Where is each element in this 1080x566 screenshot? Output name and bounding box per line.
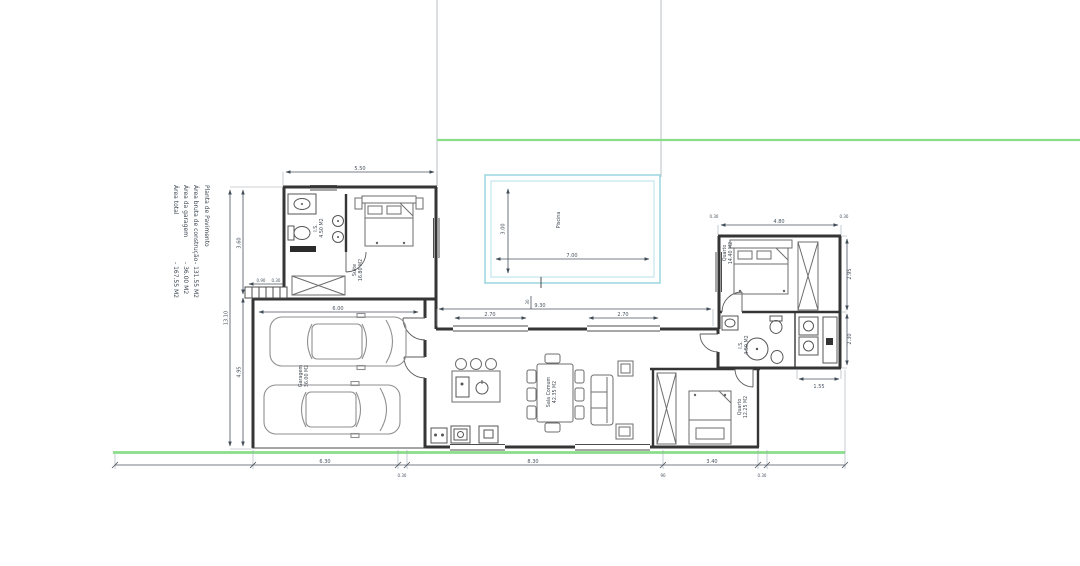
cooktop-icon: [456, 377, 469, 397]
toilet-icon: [294, 227, 310, 240]
shower-base-icon: [290, 246, 316, 252]
area-garagem-value: - 36.00 M2: [182, 262, 189, 294]
interior-walls: [346, 194, 840, 447]
dim-text-window-2: 2.70: [617, 312, 628, 318]
dim-text-porch-b: 0.30: [272, 278, 281, 283]
dim-text-bottom-6: 0.30: [758, 473, 767, 478]
room-label-quarto2-name: Quarto: [737, 399, 743, 416]
dim-text-porch-a: 0.90: [257, 278, 266, 283]
room-labels: I.S. 4.50 M2 Suite 16.80 M2 Piscina Quar…: [298, 212, 750, 419]
living-furniture: [591, 361, 633, 439]
tv-cabinet-icon: [618, 361, 633, 376]
sink-counter-icon: [722, 316, 738, 330]
sofa-icon: [591, 375, 613, 425]
kitchen-appliances: [431, 426, 498, 443]
area-construcao-value: - 131.55 M2: [192, 262, 199, 298]
bed-headboard-icon: [730, 240, 792, 248]
room-label-quarto1-area: 14.40 M2: [728, 242, 734, 264]
chair-icon: [527, 370, 536, 383]
quarto2-door: [735, 369, 753, 387]
chair-icon: [575, 388, 584, 401]
pillow-icon: [387, 206, 401, 214]
dim-text-window-1: 2.70: [484, 312, 495, 318]
dim-text-pool-width: 7.00: [566, 253, 577, 259]
dim-text-wing-off-l: 0.30: [710, 214, 719, 219]
floor-plan-page: Planta de Pavimento Área bruta de constr…: [0, 0, 1080, 566]
dim-text-left-lower: 4.95: [237, 366, 243, 377]
dim-text-mid-wall: 30: [525, 299, 530, 305]
chair-icon: [575, 406, 584, 419]
stool-icon: [456, 359, 467, 370]
pillow-icon: [368, 206, 382, 214]
title-block: Planta de Pavimento Área bruta de constr…: [172, 185, 210, 298]
dim-text-bottom-1: 6.30: [319, 459, 330, 465]
area-total-value: - 167.55 M2: [172, 262, 179, 298]
toilet-tank-icon: [288, 226, 294, 240]
dim-text-right-lower: 2.30: [847, 333, 853, 344]
chair-icon: [545, 354, 560, 363]
oven-icon: [479, 426, 498, 443]
basin-drain-icon: [301, 203, 303, 205]
chair-icon: [527, 388, 536, 401]
chair-icon: [545, 423, 560, 432]
blanket-fold-icon: [365, 203, 413, 218]
dimensions: 5.50 13.10 3.60 4.95 0.90 0.30 3.00 7.00…: [112, 166, 853, 478]
suite-furniture: [292, 196, 423, 295]
garage-cars: [264, 314, 406, 438]
dim-text-pool-height: 3.00: [501, 223, 507, 234]
quarto1-door: [722, 292, 742, 312]
dim-text-bottom-4: 90: [660, 473, 666, 478]
room-label-is2-area: 4.50 M2: [744, 335, 750, 354]
dim-bottom-chain: [112, 462, 848, 468]
pillow-icon: [696, 428, 724, 439]
dim-text-bottom-2: 0.30: [398, 473, 407, 478]
room-label-sala-name: Sala Comum: [546, 376, 552, 407]
dim-text-garage-width: 6.00: [332, 306, 343, 312]
dim-text-bottom-3: 8.30: [527, 459, 538, 465]
bathroom-2-fixtures: [722, 316, 783, 364]
area-garagem-label: Área da garagem: [182, 185, 189, 237]
is2-door: [700, 334, 718, 352]
area-construcao-label: Área bruta de construção: [192, 185, 199, 262]
site-lines: [113, 0, 1080, 453]
double-bed-icon: [689, 391, 731, 444]
car-icon: [264, 382, 400, 438]
quarto2-furniture: [657, 373, 731, 444]
pillow-icon: [757, 251, 771, 259]
garage-door-2: [404, 357, 425, 378]
dim-text-left-upper: 3.60: [237, 237, 243, 248]
room-label-is1-name: I.S.: [313, 224, 319, 232]
room-label-quarto2-area: 12.25 M2: [743, 396, 749, 418]
suite-wardrobe-icon: [292, 276, 345, 295]
room-label-sala-area: 42.35 M2: [552, 381, 558, 403]
dim-text-mid-total: 9.30: [534, 303, 545, 309]
dryer-icon: [799, 337, 818, 355]
dim-text-right-bottom: 1.55: [813, 384, 824, 390]
pillow-icon: [738, 251, 752, 259]
dim-text-right-upper: 2.95: [847, 268, 853, 279]
bathroom-1-fixtures: [288, 194, 344, 252]
dim-text-bottom-5: 3.40: [706, 459, 717, 465]
kitchen-furniture: [431, 359, 500, 444]
nightstand-icon: [355, 198, 362, 209]
floor-plan-drawing: Planta de Pavimento Área bruta de constr…: [0, 0, 1080, 566]
chair-icon: [575, 370, 584, 383]
pool: [485, 175, 660, 288]
dim-text-wing-off-r: 0.30: [840, 214, 849, 219]
plan-title: Planta de Pavimento: [203, 185, 210, 247]
room-label-piscina: Piscina: [556, 212, 562, 229]
bidet-icon: [771, 351, 783, 364]
washer-icon: [799, 317, 818, 335]
quarto2-wardrobe-icon: [657, 373, 676, 444]
double-bed-icon: [734, 248, 788, 294]
dim-text-suite-top: 5.50: [354, 166, 365, 172]
quarto1-furniture: [730, 240, 818, 310]
dim-text-wing-top: 4.80: [773, 219, 784, 225]
room-label-suite-name: Suite: [352, 264, 358, 276]
washbasin-icon: [725, 319, 735, 327]
doors: [346, 252, 753, 387]
area-total-label: Área total: [172, 185, 179, 215]
entry-porch-steps: [245, 287, 287, 298]
laundry-appliances: [799, 317, 837, 363]
room-label-quarto1-name: Quarto: [722, 245, 728, 262]
toilet-icon: [770, 321, 782, 334]
room-label-suite-area: 16.80 M2: [358, 259, 364, 281]
quarto1-wardrobe-icon: [798, 242, 818, 310]
chair-icon: [527, 406, 536, 419]
stool-icon: [486, 359, 497, 370]
room-label-garagem-area: 36.00 M2: [304, 365, 310, 387]
car-icon: [270, 314, 406, 370]
bed-headboard-icon: [362, 196, 416, 203]
room-label-garagem-name: Garagem: [298, 365, 304, 388]
stool-icon: [471, 359, 482, 370]
blanket-fold-icon: [734, 248, 788, 264]
room-label-is1-area: 4.50 M2: [319, 218, 325, 237]
room-label-is2-name: I.S.: [738, 341, 744, 349]
dim-text-left-total: 13.10: [224, 311, 230, 325]
nightstand-icon: [416, 198, 423, 209]
